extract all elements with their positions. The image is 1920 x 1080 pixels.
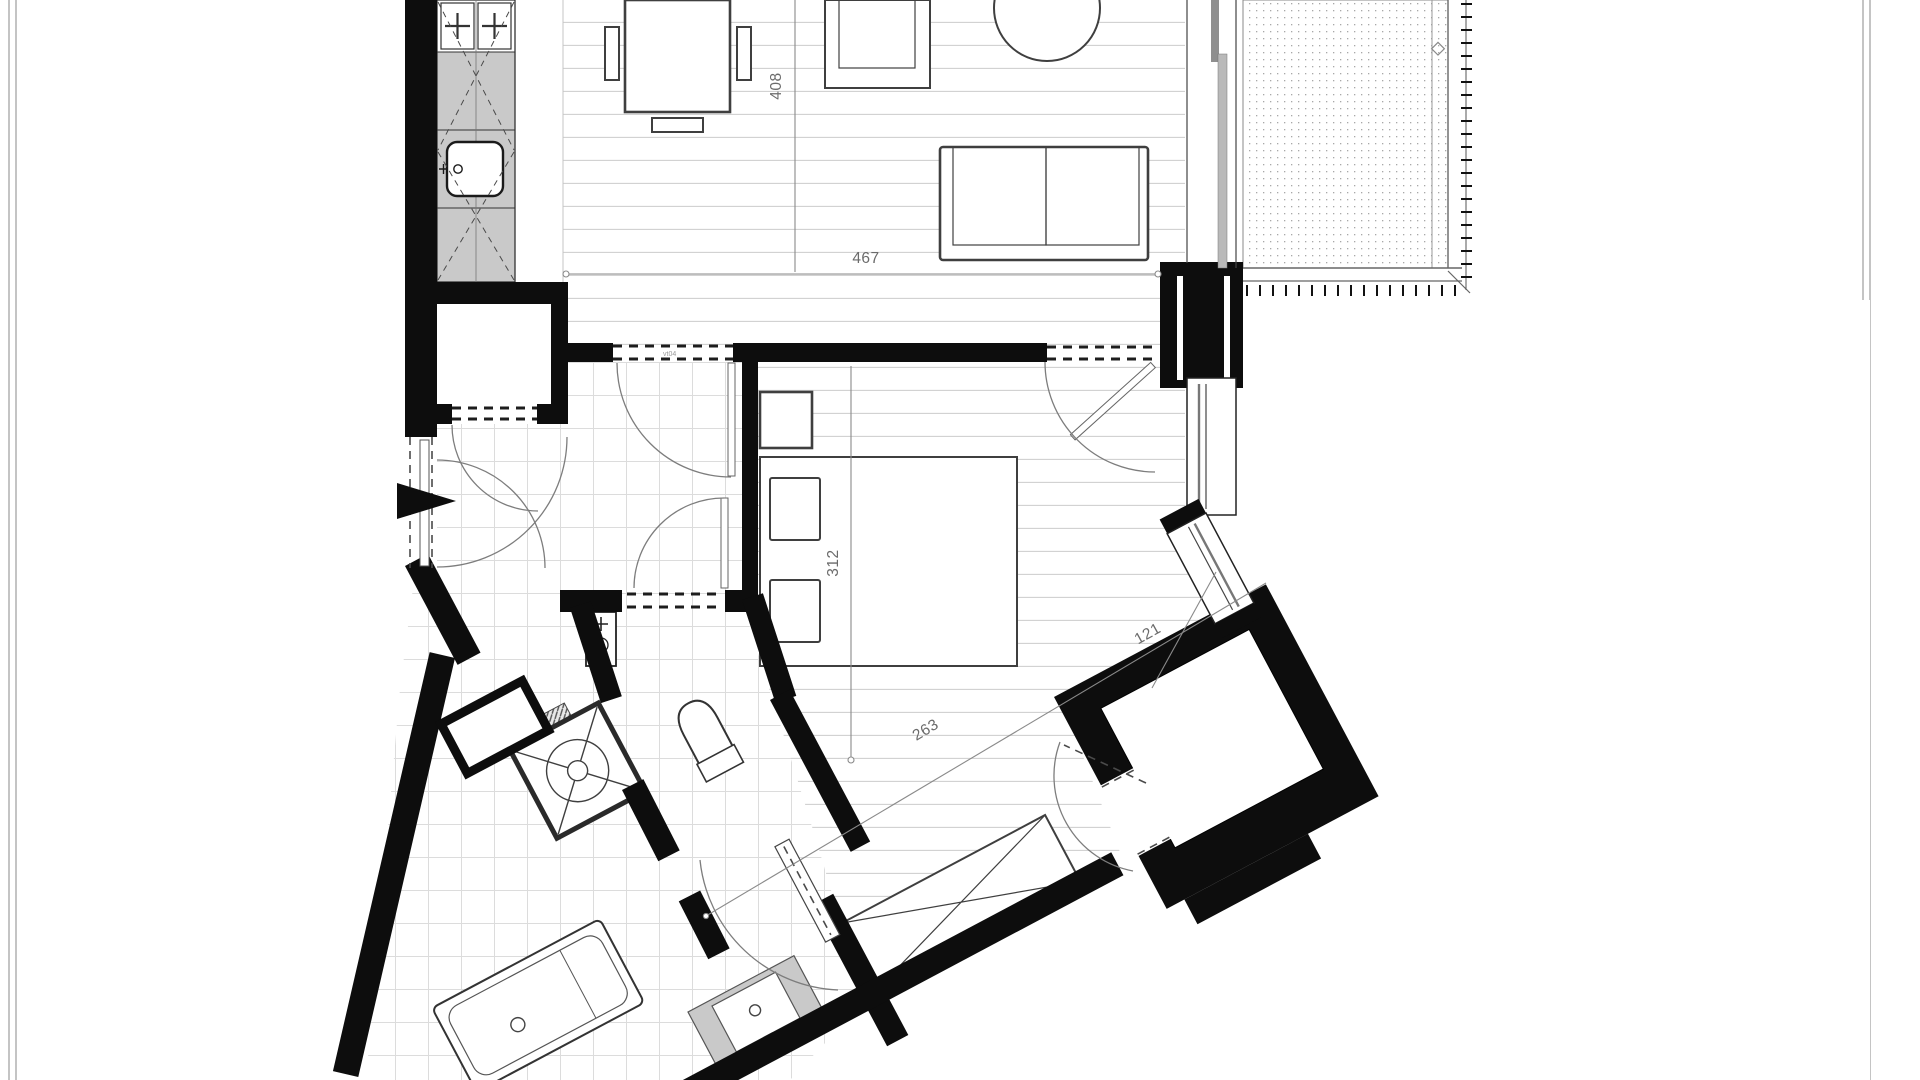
wall-closet-bottom-left <box>437 404 452 424</box>
wall-hall-bedroom <box>742 343 758 610</box>
wall-pillar-balcony <box>1160 262 1243 388</box>
floor-plan-drawing: 467 408 312 263 121 v <box>0 0 1920 1080</box>
wall-living-south-left <box>551 343 613 362</box>
sofa <box>940 147 1148 260</box>
balcony <box>1243 0 1472 296</box>
wall-living-south-right <box>733 343 1047 362</box>
sliding-door-panel-2 <box>1218 54 1227 268</box>
floor-plan-page: 467 408 312 263 121 v <box>0 0 1920 1080</box>
opening-bedroom-door <box>1047 347 1157 359</box>
railing-ticks-bottom <box>1247 285 1455 296</box>
pillar-slit-2 <box>1224 276 1230 380</box>
hall-door-leaf <box>728 363 735 476</box>
wc-door-leaf <box>721 498 728 588</box>
nightstand <box>760 392 812 448</box>
opening-tag-label: vt04 <box>663 351 676 358</box>
wall-kitchen-left <box>405 0 437 437</box>
dining-chair-left <box>605 27 619 80</box>
dining-chair-right <box>737 27 751 80</box>
exterior-mask-right <box>1236 300 1870 1080</box>
dining-table-set <box>605 0 751 132</box>
closet-floor <box>437 302 551 424</box>
kitchen-sink-icon <box>439 142 503 196</box>
dim-label-408: 408 <box>768 72 785 99</box>
armchair <box>825 0 930 88</box>
balcony-deck <box>1243 0 1448 268</box>
dim-label-312: 312 <box>825 549 842 576</box>
bedroom-window <box>1187 378 1236 515</box>
wall-closet-bottom-right <box>537 404 568 424</box>
dining-table <box>625 0 730 112</box>
bed-pillow-1 <box>770 478 820 540</box>
bed-pillow-2 <box>770 580 820 642</box>
dim-label-467: 467 <box>852 250 879 267</box>
kitchen-counter <box>437 0 515 282</box>
pillar-slit-1 <box>1177 276 1183 380</box>
sliding-door-panel-1 <box>1211 0 1219 62</box>
wall-below-kitchen <box>405 282 568 304</box>
dining-chair-bottom <box>652 118 703 132</box>
balcony-corner-miter <box>1448 271 1470 293</box>
